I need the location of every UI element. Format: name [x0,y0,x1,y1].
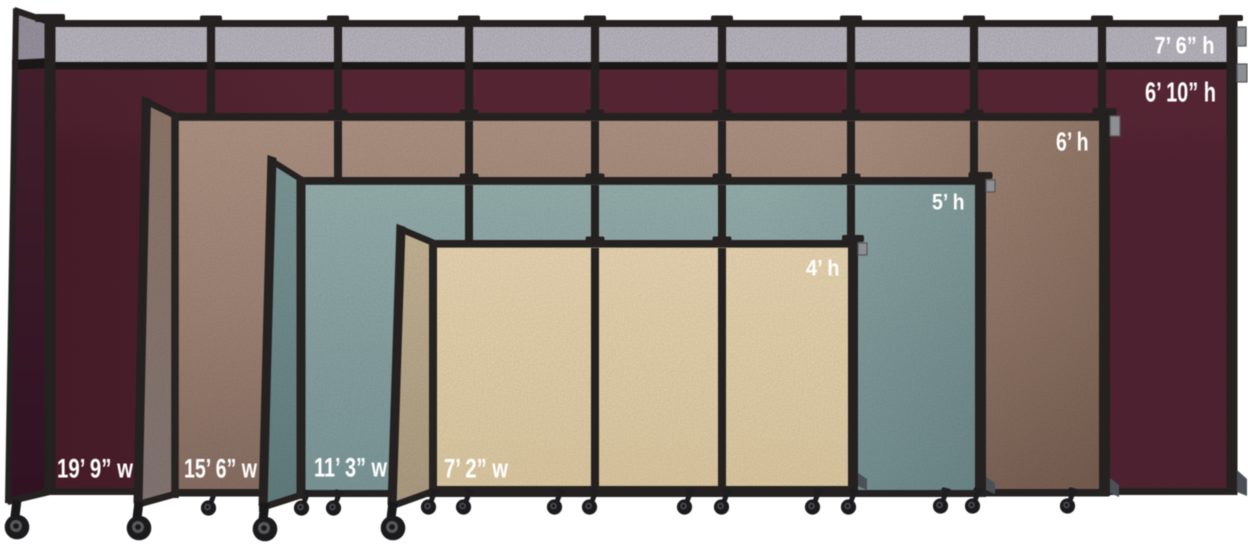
svg-text:7’ 2” w: 7’ 2” w [444,454,509,484]
svg-text:4’ h: 4’ h [806,256,840,281]
svg-text:11’ 3” w: 11’ 3” w [314,453,388,483]
svg-text:6’ h: 6’ h [1056,127,1089,157]
svg-text:6’ 10” h: 6’ 10” h [1145,76,1216,107]
svg-text:15’ 6” w: 15’ 6” w [184,454,258,484]
svg-text:19’ 9” w: 19’ 9” w [57,454,134,484]
svg-text:5’ h: 5’ h [932,190,965,215]
svg-text:7’ 6” h: 7’ 6” h [1155,33,1215,60]
